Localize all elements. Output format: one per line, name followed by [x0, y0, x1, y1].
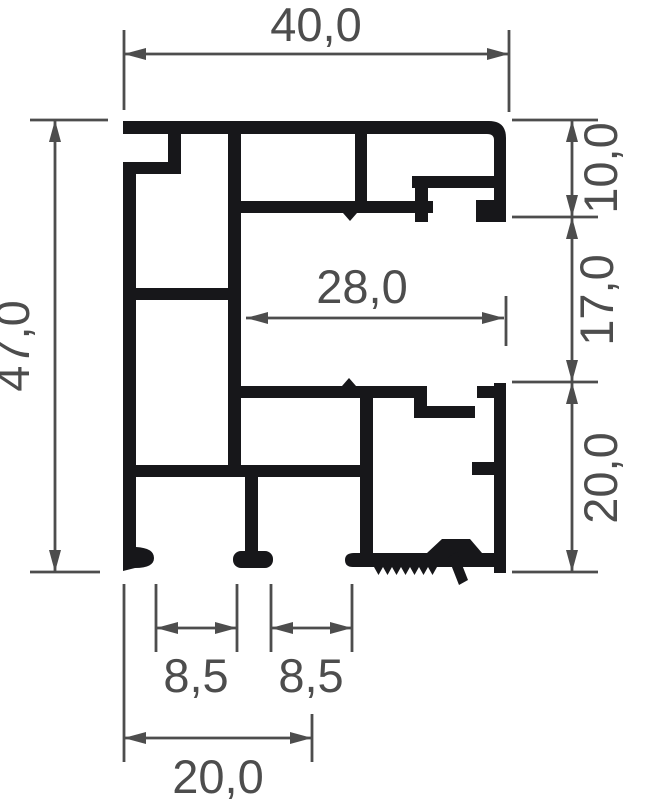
middle-web-center-mark	[342, 378, 356, 386]
arrow-head	[566, 217, 578, 239]
dimension-top-width: 40,0	[124, 0, 509, 112]
bottom-chamber-wall	[360, 398, 373, 555]
drawing-canvas: 40,0 47,0 10,0	[0, 0, 646, 800]
arrows-and-label: 47,0	[0, 120, 61, 572]
arrows-and-label: 8,5	[156, 622, 237, 702]
right-wall-tab-upper	[477, 386, 494, 398]
top-channel-wall	[355, 134, 367, 204]
upper-hook-bar	[412, 176, 494, 188]
dimension-groove-left: 8,5	[156, 584, 237, 702]
middle-web	[228, 386, 427, 398]
bottom-wall	[345, 553, 435, 567]
t-leg-foot	[233, 551, 273, 568]
upper-hook-tooth	[415, 188, 428, 222]
dimension-right-upper: 10,0	[512, 120, 627, 217]
arrow-head	[290, 732, 312, 744]
lower-web	[123, 465, 373, 477]
arrow-head	[482, 312, 504, 324]
dimension-bottom-width-label: 20,0	[172, 750, 263, 800]
dimension-right-lower-label: 20,0	[574, 432, 627, 523]
arrow-head	[271, 622, 293, 634]
t-leg-stem	[245, 477, 258, 553]
left-wall-foot	[123, 547, 154, 571]
upper-right-lip	[476, 200, 494, 222]
left-partition	[123, 288, 241, 300]
upper-web	[241, 201, 433, 213]
arrow-head	[49, 120, 61, 142]
dimension-top-width-label: 40,0	[270, 0, 361, 51]
arrow-head	[330, 622, 352, 634]
arrows-and-label: 40,0	[124, 0, 509, 60]
arrow-head	[566, 550, 578, 572]
dimension-inner-width: 28,0	[246, 260, 506, 346]
middle-web-step	[414, 398, 475, 418]
dimension-groove-right: 8,5	[271, 584, 352, 702]
arrow-head	[124, 732, 146, 744]
arrows-and-label: 17,0	[566, 217, 623, 382]
profile-body	[123, 121, 506, 585]
dimension-right-middle: 17,0	[512, 217, 623, 382]
dimension-right-upper-label: 10,0	[574, 122, 627, 213]
top-left-stub	[168, 134, 181, 166]
right-wall-lower	[494, 383, 506, 573]
dimension-inner-width-label: 28,0	[316, 260, 407, 313]
arrow-head	[246, 312, 268, 324]
arrow-head	[566, 382, 578, 404]
dimension-layer: 40,0 47,0 10,0	[0, 0, 627, 800]
dimension-overall-height-label: 47,0	[0, 300, 39, 391]
dimension-groove-right-label: 8,5	[278, 649, 343, 702]
arrow-head	[487, 48, 509, 60]
dimension-overall-height: 47,0	[0, 120, 108, 572]
arrows-and-label: 8,5	[271, 622, 352, 702]
profile-drawing: 40,0 47,0 10,0	[0, 0, 646, 800]
arrow-head	[49, 550, 61, 572]
dimension-right-middle-label: 17,0	[570, 254, 623, 345]
arrow-head	[124, 48, 146, 60]
arrow-head	[156, 622, 178, 634]
arrows-and-label: 20,0	[124, 732, 312, 800]
dimension-right-lower: 20,0	[512, 382, 627, 572]
arrows-and-label: 28,0	[246, 260, 504, 324]
arrow-head	[215, 622, 237, 634]
arrows-and-label: 20,0	[566, 382, 627, 572]
dimension-groove-left-label: 8,5	[163, 649, 228, 702]
left-wall	[123, 162, 136, 553]
right-wall-tab-lower	[472, 462, 494, 475]
bottom-wall-right-segment	[478, 553, 502, 567]
arrow-head	[566, 360, 578, 382]
upper-web-center-mark	[343, 213, 357, 221]
bottom-wall-serrations	[374, 567, 437, 575]
arrows-and-label: 10,0	[566, 120, 627, 217]
